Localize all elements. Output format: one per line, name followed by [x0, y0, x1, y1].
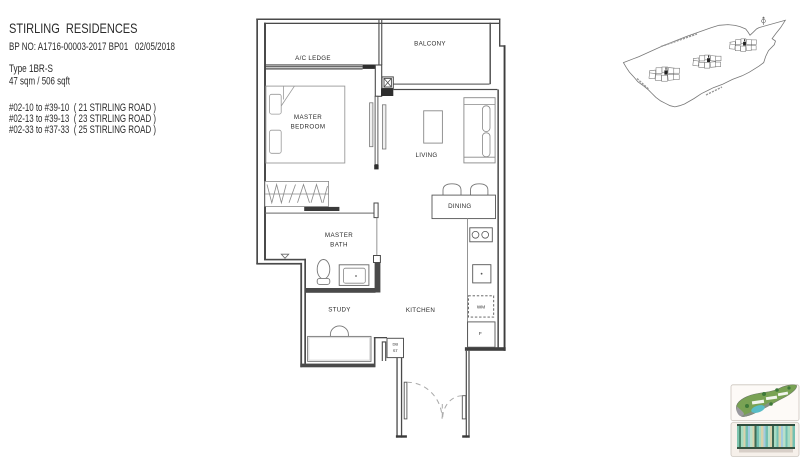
svg-text:Type 1BR-S: Type 1BR-S — [9, 63, 53, 75]
svg-text:#02-10 to #39-10 ( 21 STIRLIN: #02-10 to #39-10 ( 21 STIRLING ROAD ) — [9, 102, 156, 114]
svg-text:BEDROOM: BEDROOM — [291, 123, 326, 130]
svg-text:MASTER: MASTER — [325, 232, 353, 239]
svg-text:BP NO: A1716-00003-2017 BP01: BP NO: A1716-00003-2017 BP01 02/05/2018 — [9, 41, 175, 53]
svg-text:DB: DB — [393, 341, 399, 346]
svg-text:KITCHEN: KITCHEN — [406, 307, 435, 314]
svg-text:A/C LEDGE: A/C LEDGE — [295, 55, 331, 62]
svg-text:BATH: BATH — [330, 241, 348, 248]
svg-text:#02-13 to #39-13 ( 23 STIRLIN: #02-13 to #39-13 ( 23 STIRLING ROAD ) — [9, 113, 156, 125]
svg-text:LIVING: LIVING — [415, 152, 437, 159]
svg-text:#02-33 to #37-33 ( 25 STIRLIN: #02-33 to #37-33 ( 25 STIRLING ROAD ) — [9, 124, 156, 136]
svg-text:STUDY: STUDY — [328, 306, 350, 313]
svg-text:BALCONY: BALCONY — [414, 40, 446, 47]
svg-text:F: F — [479, 331, 482, 337]
svg-text:ST: ST — [393, 348, 399, 353]
svg-text:STIRLING RESIDENCES: STIRLING RESIDENCES — [9, 20, 138, 36]
svg-text:WM: WM — [477, 305, 485, 310]
svg-text:MASTER: MASTER — [294, 114, 322, 121]
svg-text:DINING: DINING — [448, 203, 471, 210]
svg-text:47 sqm / 506 sqft: 47 sqm / 506 sqft — [9, 75, 71, 87]
